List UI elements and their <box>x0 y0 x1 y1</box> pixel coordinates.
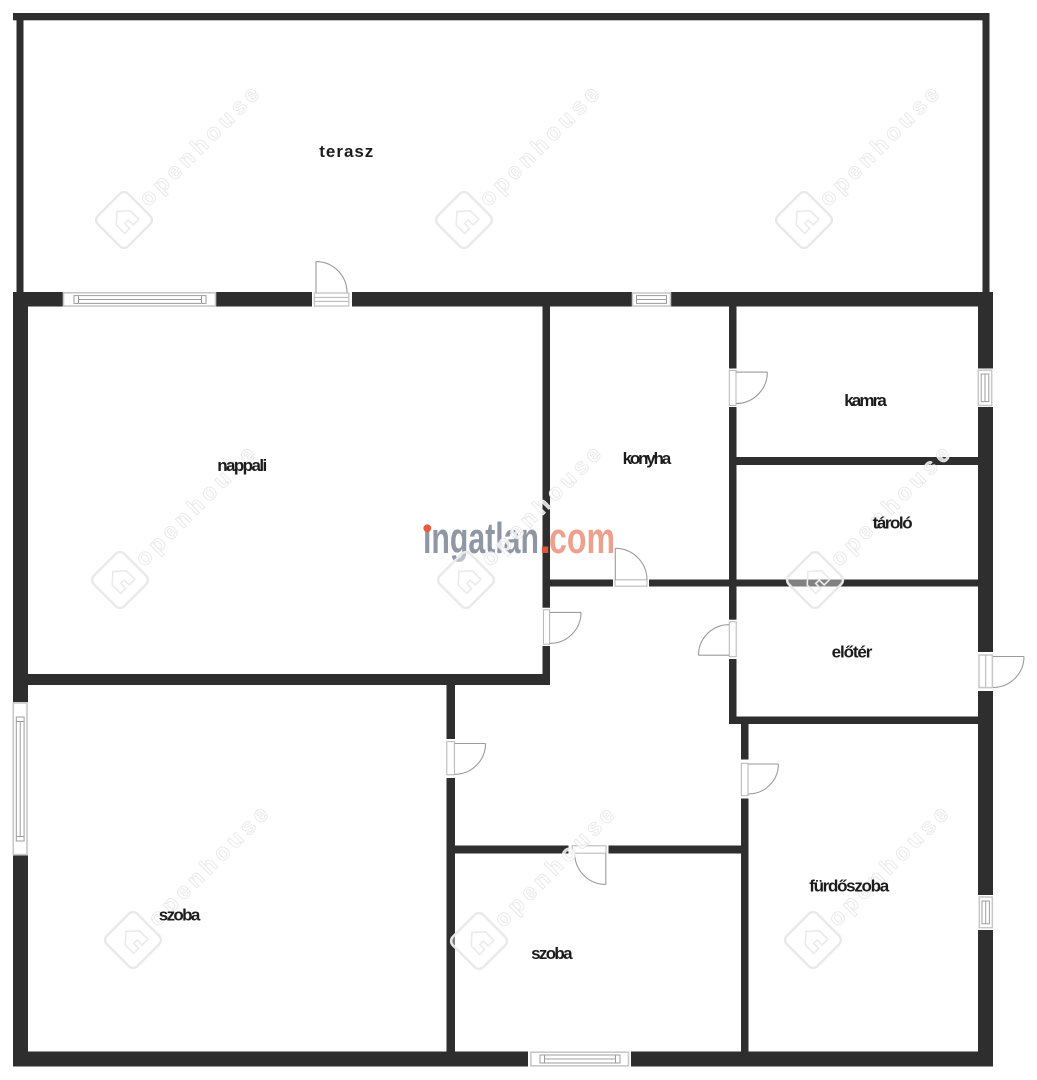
svg-text:előtér: előtér <box>832 643 873 662</box>
svg-text:kamra: kamra <box>844 391 887 410</box>
svg-text:szoba: szoba <box>159 905 201 924</box>
svg-text:terasz: terasz <box>319 142 373 161</box>
svg-text:szoba: szoba <box>531 944 573 963</box>
svg-text:nappali: nappali <box>217 456 267 475</box>
svg-text:fürdőszoba: fürdőszoba <box>809 876 890 895</box>
svg-text:tároló: tároló <box>873 514 913 533</box>
svg-text:konyha: konyha <box>623 449 672 468</box>
svg-text:com: com <box>549 514 615 563</box>
